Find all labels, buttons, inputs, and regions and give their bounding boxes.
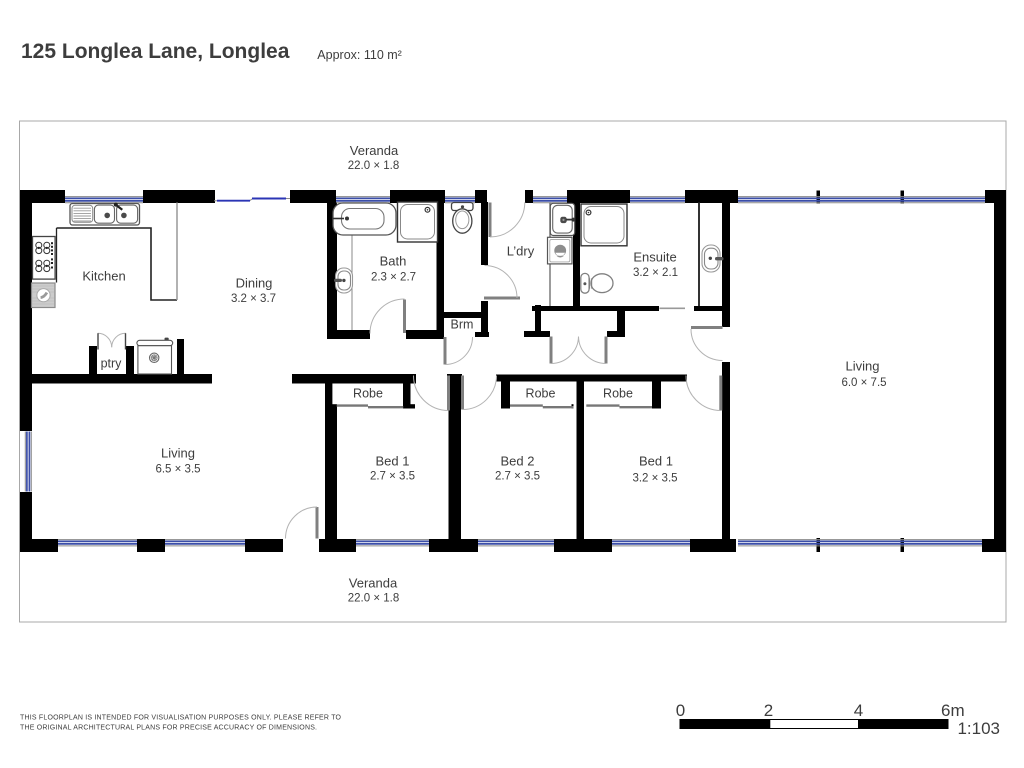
- svg-text:Approx: 110 m²: Approx: 110 m²: [317, 48, 402, 62]
- svg-text:3.2 × 2.1: 3.2 × 2.1: [633, 267, 678, 279]
- svg-text:2: 2: [764, 701, 773, 720]
- svg-text:Dining: Dining: [236, 275, 273, 290]
- svg-text:Bed 1: Bed 1: [639, 454, 673, 469]
- svg-text:ptry: ptry: [101, 357, 123, 371]
- svg-text:Bed 2: Bed 2: [501, 453, 535, 468]
- svg-text:Kitchen: Kitchen: [82, 269, 125, 284]
- svg-text:Robe: Robe: [526, 387, 556, 401]
- svg-text:2.7 × 3.5: 2.7 × 3.5: [370, 470, 415, 482]
- svg-text:THE ORIGINAL ARCHITECTURAL PLA: THE ORIGINAL ARCHITECTURAL PLANS FOR PRE…: [20, 725, 317, 732]
- svg-text:Robe: Robe: [603, 387, 633, 401]
- svg-text:0: 0: [676, 701, 685, 720]
- svg-text:3.2 × 3.5: 3.2 × 3.5: [632, 472, 677, 484]
- svg-text:1:103: 1:103: [957, 719, 1000, 738]
- svg-text:THIS FLOORPLAN IS INTENDED FOR: THIS FLOORPLAN IS INTENDED FOR VISUALISA…: [20, 715, 342, 722]
- svg-text:Living: Living: [161, 445, 195, 460]
- svg-text:22.0 × 1.8: 22.0 × 1.8: [348, 593, 399, 605]
- svg-text:4: 4: [854, 701, 863, 720]
- svg-text:Bath: Bath: [380, 254, 407, 269]
- svg-text:Ensuite: Ensuite: [633, 250, 676, 265]
- svg-text:Living: Living: [846, 358, 880, 373]
- svg-text:6.0 × 7.5: 6.0 × 7.5: [841, 377, 886, 389]
- svg-text:125 Longlea Lane, Longlea: 125 Longlea Lane, Longlea: [21, 40, 290, 63]
- svg-text:2.7 × 3.5: 2.7 × 3.5: [495, 470, 540, 482]
- svg-text:6m: 6m: [941, 701, 965, 720]
- svg-text:22.0 × 1.8: 22.0 × 1.8: [348, 160, 399, 172]
- svg-text:Robe: Robe: [353, 387, 383, 401]
- svg-text:3.2 × 3.7: 3.2 × 3.7: [231, 293, 276, 305]
- svg-text:Bed 1: Bed 1: [376, 453, 410, 468]
- svg-text:Brm: Brm: [451, 317, 474, 331]
- svg-text:2.3 × 2.7: 2.3 × 2.7: [371, 271, 416, 283]
- svg-text:Veranda: Veranda: [350, 143, 399, 158]
- svg-text:6.5 × 3.5: 6.5 × 3.5: [155, 464, 200, 476]
- svg-text:L’dry: L’dry: [507, 244, 535, 259]
- svg-text:Veranda: Veranda: [349, 576, 398, 591]
